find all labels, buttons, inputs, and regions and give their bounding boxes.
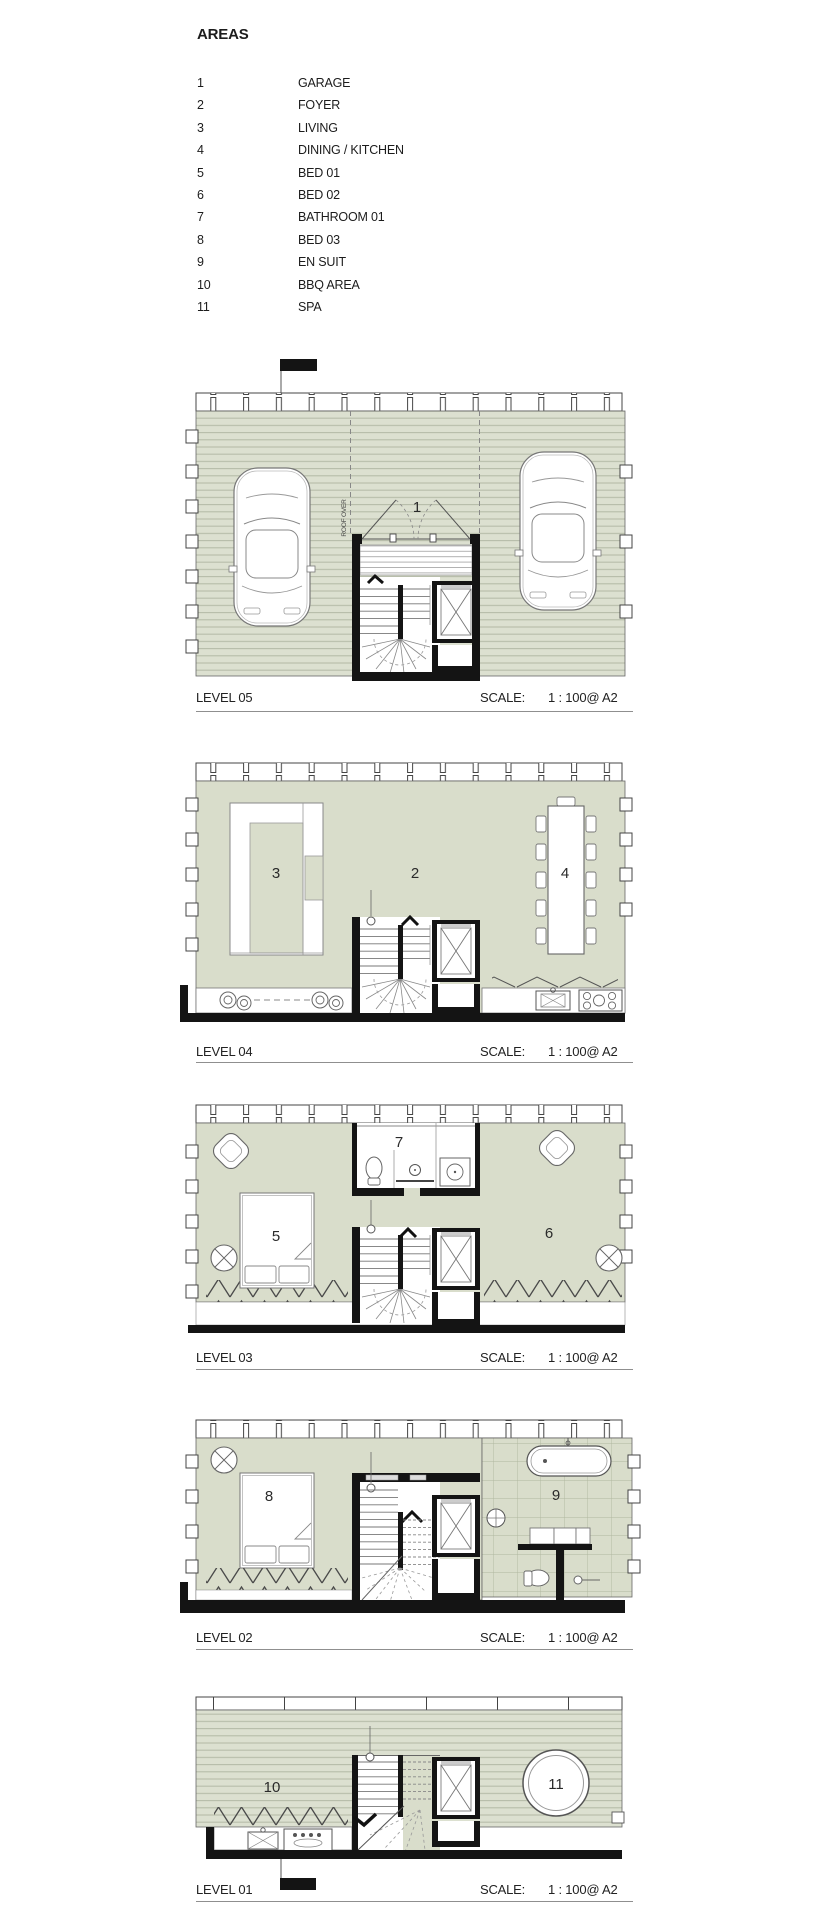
room-label-living: 3 (272, 865, 280, 882)
cupboard-zigzag (492, 976, 618, 988)
legend-item: 8BED 03 (197, 229, 404, 251)
level-03-plan: 7 5 6 (186, 1105, 818, 1333)
legend-item: 1GARAGE (197, 72, 404, 94)
scale-value: 1 : 100@ A2 (548, 690, 618, 705)
level-name: LEVEL 01 (196, 1882, 252, 1897)
legend-item: 4DINING / KITCHEN (197, 139, 404, 161)
level-name: LEVEL 03 (196, 1350, 252, 1365)
room-label-garage: 1 (413, 499, 421, 516)
room-label-bed02: 6 (545, 1225, 553, 1242)
elevator (432, 1228, 480, 1290)
wardrobe-zigzag (484, 1280, 622, 1302)
scale-label: SCALE: (480, 1350, 525, 1365)
car-right (515, 452, 601, 610)
level-04-plan: 3 2 4 (180, 763, 632, 1022)
car-left (229, 468, 315, 626)
caption-level-05: LEVEL 05 SCALE: 1 : 100@ A2 (196, 690, 633, 706)
caption-rule (196, 1369, 633, 1370)
legend-item: 3LIVING (197, 117, 404, 139)
legend-title: AREAS (197, 26, 249, 43)
room-label-dining: 4 (561, 865, 569, 882)
bed-03 (240, 1473, 314, 1568)
elevator (432, 1495, 480, 1557)
scale-label: SCALE: (480, 1044, 525, 1059)
legend-item: 5BED 01 (197, 162, 404, 184)
store-room (438, 1559, 474, 1593)
stair-core (352, 1452, 480, 1602)
areas-legend: 1GARAGE 2FOYER 3LIVING 4DINING / KITCHEN… (197, 72, 404, 318)
scale-label: SCALE: (480, 1882, 525, 1897)
scale-value: 1 : 100@ A2 (548, 1044, 618, 1059)
level-name: LEVEL 05 (196, 690, 252, 705)
store-room (438, 984, 474, 1007)
room-label-bathroom: 7 (395, 1134, 403, 1151)
bathroom (352, 1123, 480, 1196)
side-table (596, 1245, 622, 1271)
caption-level-01: LEVEL 01 SCALE: 1 : 100@ A2 (196, 1882, 633, 1898)
setout-point (367, 1225, 375, 1233)
roof-over-note: ROOF OVER (341, 499, 348, 537)
setout-point (367, 917, 375, 925)
legend-item: 7BATHROOM 01 (197, 206, 404, 228)
elevator (432, 920, 480, 982)
room-label-bbq-area: 10 (264, 1779, 281, 1796)
scale-value: 1 : 100@ A2 (548, 1882, 618, 1897)
level-02-plan: 8 9 (180, 1420, 640, 1613)
store-room (438, 1292, 474, 1319)
toilet (366, 1157, 382, 1179)
vanity (530, 1528, 554, 1544)
legend-item: 9EN SUIT (197, 251, 404, 273)
scale-value: 1 : 100@ A2 (548, 1350, 618, 1365)
garage-floor (360, 545, 472, 575)
room-label-spa: 11 (548, 1776, 564, 1793)
bathtub (527, 1446, 611, 1476)
store-room (438, 645, 474, 666)
level-name: LEVEL 02 (196, 1630, 252, 1645)
wardrobe-zigzag (206, 1568, 348, 1590)
level-05-plan: ROOF OVER 1 (186, 359, 632, 681)
stairs (352, 577, 440, 673)
bbq-grill (284, 1829, 332, 1852)
scale-value: 1 : 100@ A2 (548, 1630, 618, 1645)
legend-item: 10BBQ AREA (197, 274, 404, 296)
side-table (211, 1245, 237, 1271)
caption-rule (196, 1649, 633, 1650)
side-table (211, 1447, 237, 1473)
room-label-foyer: 2 (411, 865, 419, 882)
room-label-ensuite: 9 (552, 1487, 560, 1504)
level-name: LEVEL 04 (196, 1044, 252, 1059)
north-flag-marker (280, 359, 317, 371)
legend-item: 6BED 02 (197, 184, 404, 206)
level-01-plan: 10 11 (196, 1697, 624, 1890)
scale-label: SCALE: (480, 690, 525, 705)
caption-rule (196, 711, 633, 712)
caption-rule (196, 1901, 633, 1902)
bench-zigzag (214, 1807, 348, 1827)
caption-level-04: LEVEL 04 SCALE: 1 : 100@ A2 (196, 1044, 633, 1060)
drawing-sheet: ROOF OVER 1 (0, 0, 818, 1931)
caption-level-03: LEVEL 03 SCALE: 1 : 100@ A2 (196, 1350, 633, 1366)
store-room (438, 1821, 474, 1841)
stairs (352, 917, 440, 1013)
room-label-bed01: 5 (272, 1228, 280, 1245)
scale-label: SCALE: (480, 1630, 525, 1645)
stairs (352, 1227, 440, 1323)
caption-level-02: LEVEL 02 SCALE: 1 : 100@ A2 (196, 1630, 633, 1646)
caption-rule (196, 1062, 633, 1063)
elevator (432, 1757, 480, 1819)
legend-item: 11SPA (197, 296, 404, 318)
room-label-bed03: 8 (265, 1488, 273, 1505)
partition-wall (556, 1550, 564, 1606)
legend-item: 2FOYER (197, 94, 404, 116)
balcony-strip (196, 988, 352, 1013)
bbq-bench (214, 1827, 352, 1852)
kitchen-bench (482, 976, 625, 1013)
